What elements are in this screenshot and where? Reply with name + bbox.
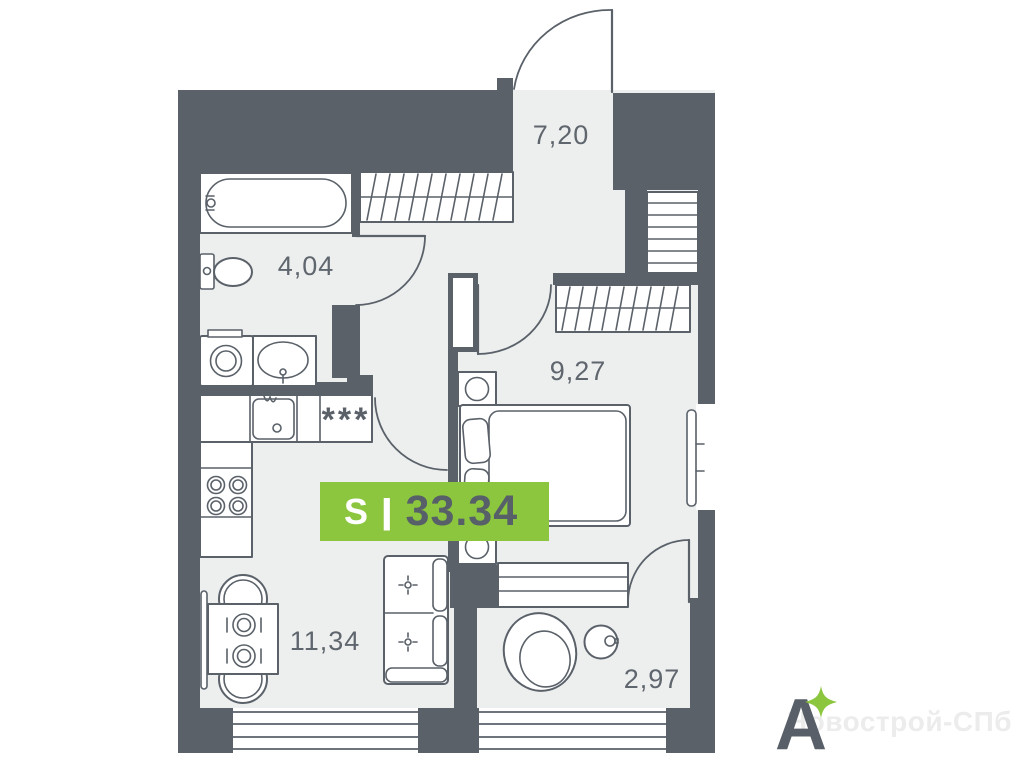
total-area-badge: S | 33.34 [320, 482, 549, 541]
kitchen-sink [253, 396, 294, 439]
sofa [384, 556, 448, 684]
room-label-hallway: 7,20 [533, 120, 590, 150]
entrance-door [514, 10, 612, 92]
bedroom-window [687, 404, 716, 510]
floor-plan-canvas: *** [0, 0, 1019, 768]
room-label-balcony: 2,97 [624, 664, 681, 694]
bathroom-sink [253, 336, 316, 386]
floorplan-screenshot: *** [0, 0, 1019, 768]
room-label-bedroom: 9,27 [550, 356, 607, 386]
side-table [585, 626, 619, 659]
badge-total-area: 33.34 [406, 490, 519, 533]
radiator [201, 591, 207, 689]
fridge-symbol: *** [322, 401, 371, 439]
room-label-bathroom: 4,04 [278, 251, 335, 281]
bedroom-wardrobe [556, 285, 690, 332]
living-room-window [233, 708, 418, 753]
balcony-shelf [498, 563, 628, 607]
nightstand-top [458, 372, 496, 406]
closet-shelves [647, 192, 698, 273]
fridge-asterisks-icon: *** [322, 401, 371, 439]
washing-machine [200, 330, 253, 386]
room-label-living-kitchen: 11,34 [290, 626, 361, 656]
balcony-window [479, 708, 666, 753]
bathtub [200, 173, 352, 233]
hallway-wardrobe [360, 172, 513, 222]
dining-set [208, 575, 278, 703]
badge-series-label: S [344, 494, 368, 530]
sparkle-star-icon [804, 685, 838, 719]
badge-divider: | [380, 495, 393, 529]
